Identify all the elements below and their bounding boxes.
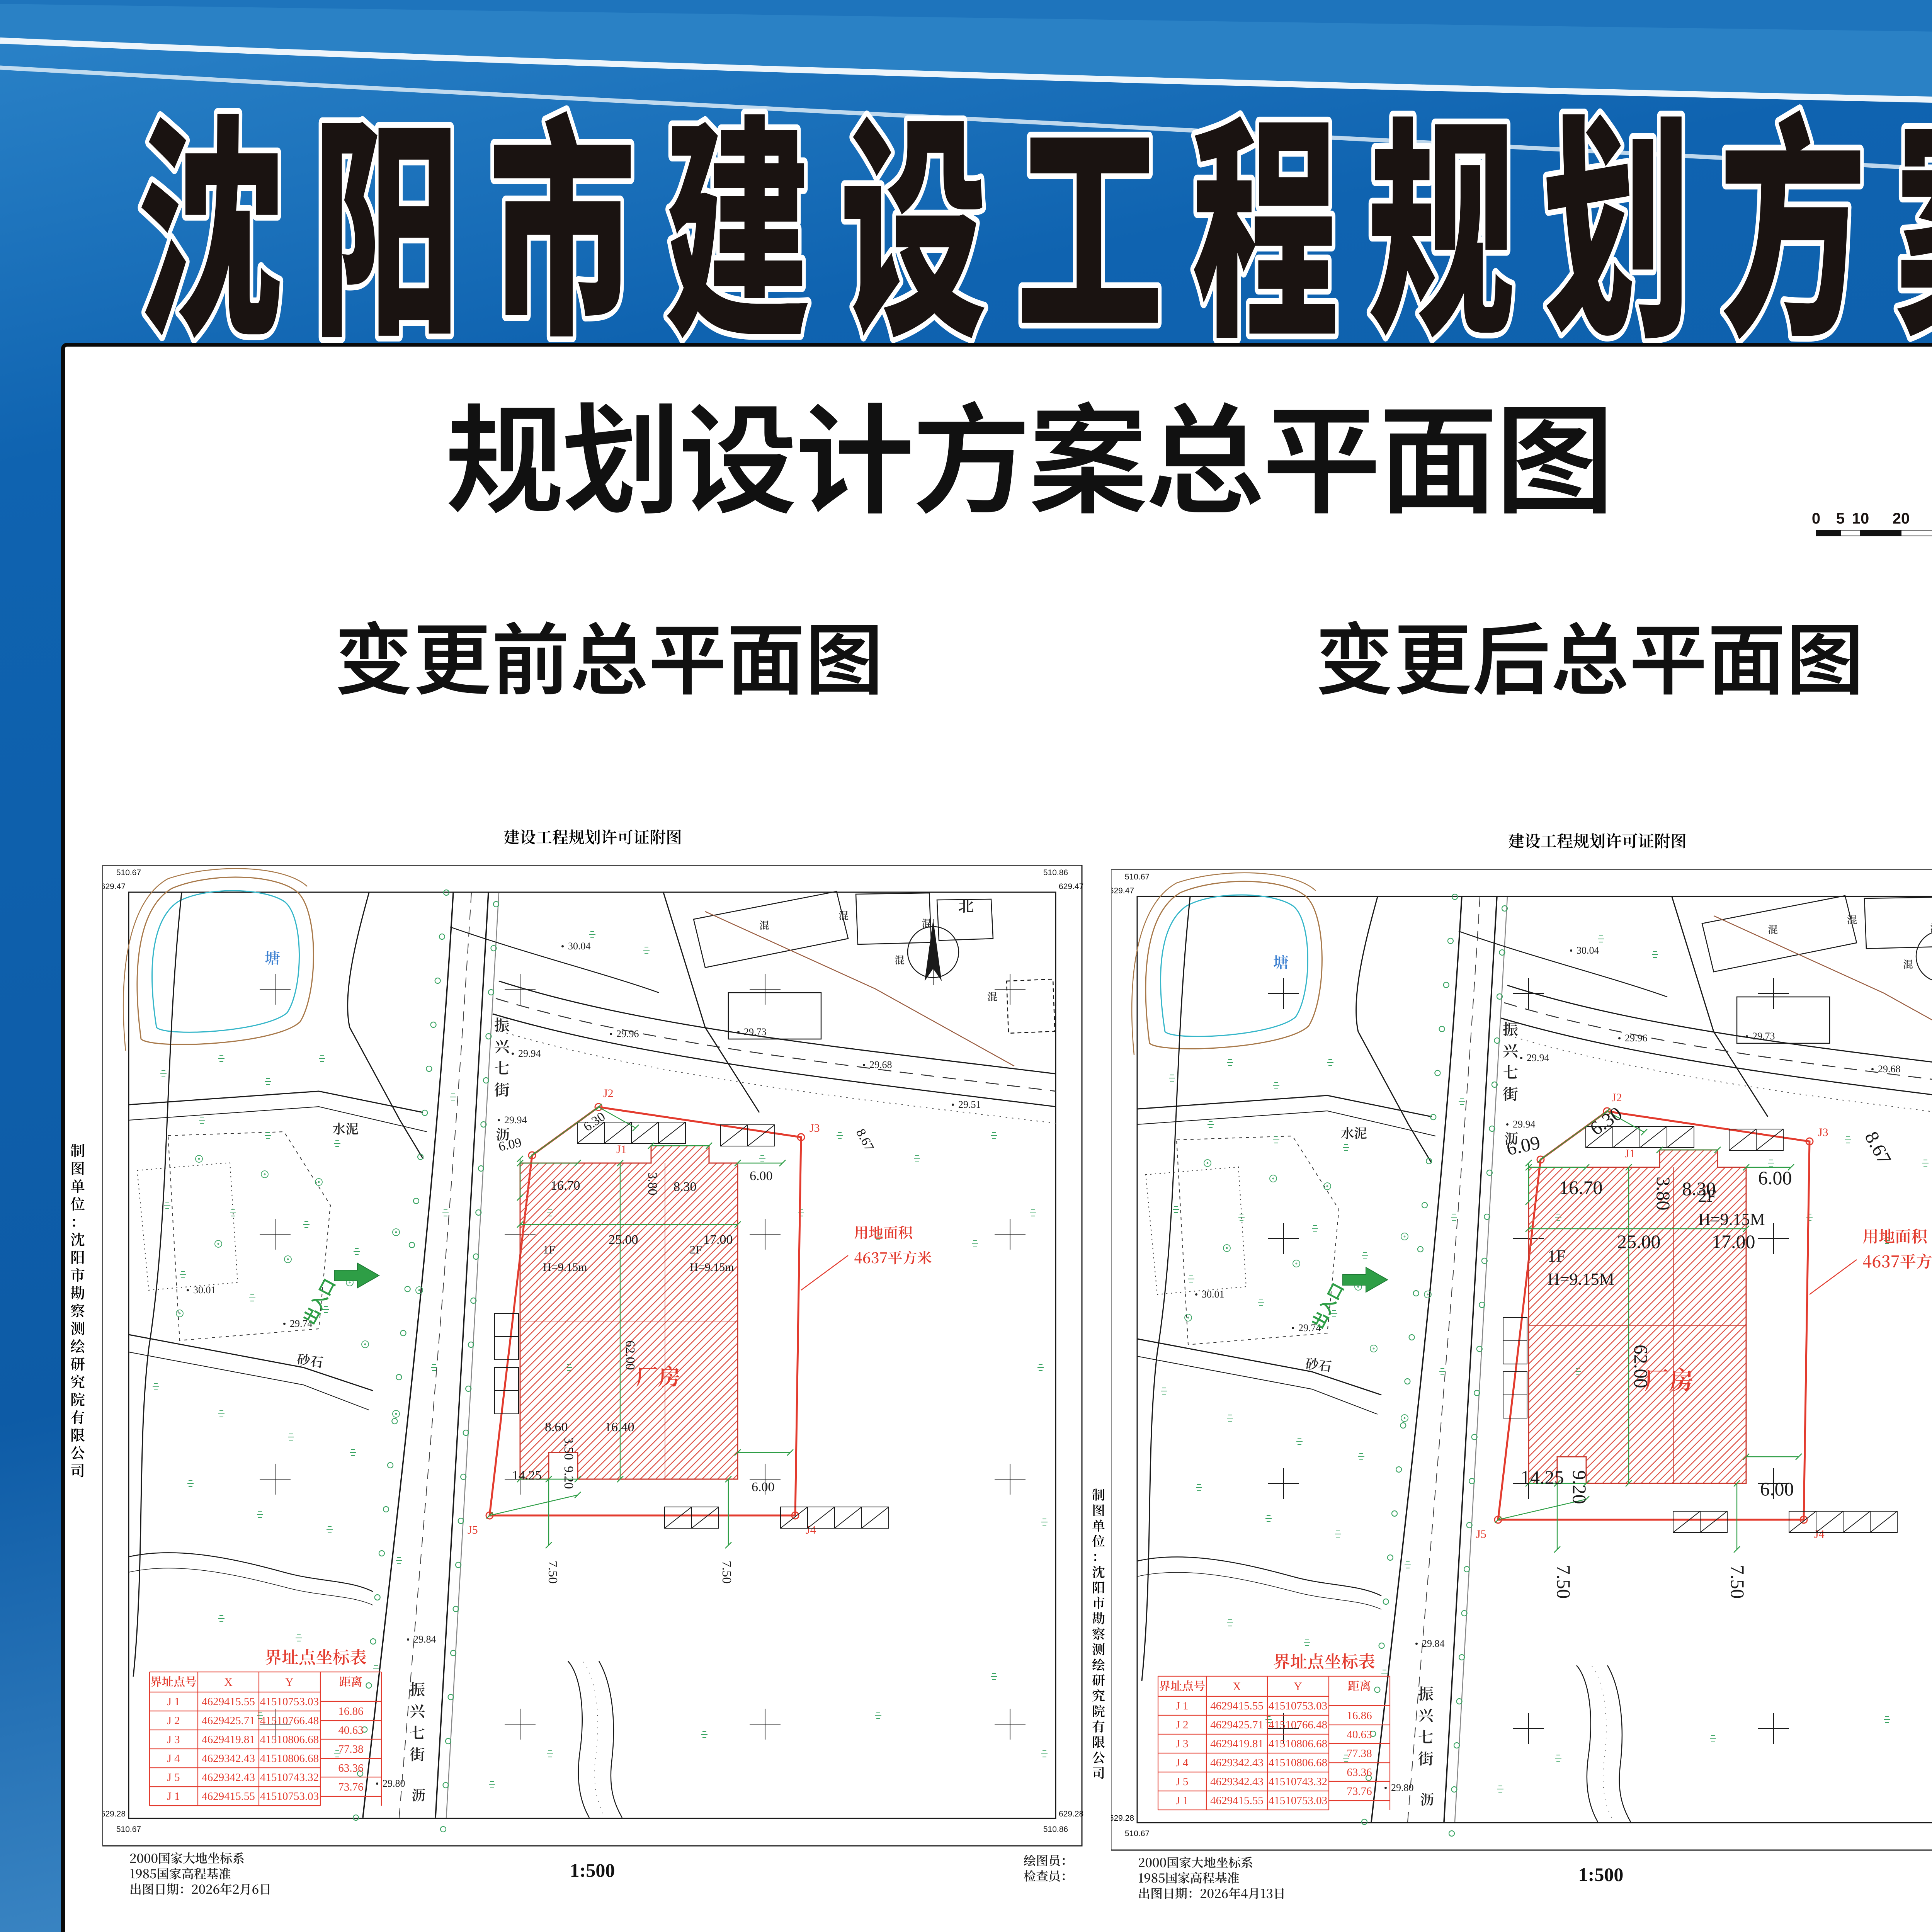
svg-text:29.74: 29.74 [1298, 1322, 1321, 1333]
svg-text:8.60: 8.60 [545, 1420, 568, 1434]
svg-text:J 1: J 1 [1175, 1700, 1188, 1712]
svg-text:629.47: 629.47 [102, 882, 126, 891]
svg-text:Y: Y [1294, 1680, 1302, 1693]
svg-text:4629415.55: 4629415.55 [202, 1696, 255, 1708]
svg-text:1F: 1F [543, 1243, 555, 1256]
svg-text:41510806.68: 41510806.68 [260, 1733, 319, 1746]
svg-text:4629415.55: 4629415.55 [1210, 1794, 1264, 1807]
svg-text:6.30: 6.30 [581, 1109, 608, 1134]
svg-text:6.00: 6.00 [752, 1480, 775, 1494]
svg-text:J 2: J 2 [1175, 1719, 1188, 1731]
svg-text:41510753.03: 41510753.03 [260, 1696, 319, 1708]
svg-text:6.00: 6.00 [750, 1169, 773, 1183]
svg-text:29.73: 29.73 [744, 1026, 767, 1037]
svg-text:17.00: 17.00 [1712, 1231, 1755, 1252]
svg-text:62.00: 62.00 [1630, 1345, 1652, 1388]
svg-text:62.00: 62.00 [623, 1340, 637, 1370]
svg-text:8.67: 8.67 [853, 1126, 877, 1153]
svg-text:9.20: 9.20 [561, 1466, 576, 1489]
svg-text:1:500: 1:500 [570, 1859, 615, 1881]
svg-text:629.28: 629.28 [1059, 1810, 1083, 1818]
svg-text:J 1: J 1 [1175, 1794, 1188, 1807]
svg-text:J1: J1 [1625, 1147, 1635, 1160]
svg-text:510.67: 510.67 [116, 868, 141, 877]
svg-text:J 4: J 4 [167, 1752, 180, 1765]
svg-text:7.50: 7.50 [546, 1561, 560, 1584]
svg-text:1F: 1F [1548, 1247, 1565, 1265]
svg-text:J 5: J 5 [167, 1771, 180, 1784]
svg-text:X: X [224, 1676, 233, 1689]
svg-text:629.28: 629.28 [1111, 1814, 1134, 1823]
svg-text:10: 10 [1852, 510, 1869, 527]
svg-text:4629342.43: 4629342.43 [1210, 1757, 1264, 1769]
svg-text:29.94: 29.94 [518, 1048, 541, 1059]
svg-text:3.80: 3.80 [1653, 1177, 1674, 1211]
svg-text:30.01: 30.01 [193, 1284, 216, 1296]
svg-text:41510753.03: 41510753.03 [1269, 1700, 1327, 1712]
svg-text:25.00: 25.00 [1617, 1231, 1661, 1252]
svg-text:3.50: 3.50 [561, 1437, 576, 1460]
svg-text:4629415.55: 4629415.55 [1210, 1700, 1264, 1712]
svg-text:H=9.15m: H=9.15m [543, 1261, 587, 1274]
svg-text:0: 0 [1812, 510, 1820, 527]
svg-text:J 3: J 3 [167, 1733, 180, 1746]
svg-text:4629342.43: 4629342.43 [1210, 1776, 1264, 1788]
svg-text:16.86: 16.86 [338, 1705, 363, 1718]
svg-text:6.00: 6.00 [1760, 1478, 1794, 1500]
svg-text:7.50: 7.50 [1553, 1565, 1575, 1599]
svg-text:30.01: 30.01 [1202, 1289, 1225, 1300]
svg-text:H=9.15M: H=9.15M [1548, 1270, 1614, 1289]
svg-text:J2: J2 [1612, 1091, 1622, 1104]
svg-text:29.51: 29.51 [958, 1099, 981, 1110]
svg-text:4629419.81: 4629419.81 [1210, 1738, 1264, 1750]
svg-text:63.36: 63.36 [1347, 1766, 1372, 1779]
svg-text:510.86: 510.86 [1043, 1825, 1068, 1834]
svg-text:7.50: 7.50 [719, 1561, 734, 1584]
svg-text:J 1: J 1 [167, 1696, 180, 1708]
svg-text:J 5: J 5 [1175, 1776, 1188, 1788]
svg-text:30.04: 30.04 [568, 940, 591, 952]
svg-text:510.67: 510.67 [1125, 1829, 1150, 1838]
svg-text:41510766.48: 41510766.48 [1269, 1719, 1327, 1731]
svg-text:J5: J5 [1476, 1528, 1486, 1541]
svg-text:25.00: 25.00 [609, 1233, 638, 1247]
svg-text:4629425.71: 4629425.71 [1210, 1719, 1264, 1731]
svg-text:16.70: 16.70 [1559, 1177, 1603, 1198]
svg-text:510.86: 510.86 [1043, 868, 1068, 877]
svg-text:J5: J5 [468, 1524, 478, 1536]
svg-text:73.76: 73.76 [338, 1781, 363, 1793]
svg-text:29.94: 29.94 [504, 1114, 527, 1126]
svg-text:5: 5 [1836, 510, 1845, 527]
svg-text:29.80: 29.80 [1391, 1782, 1414, 1793]
svg-text:29.96: 29.96 [616, 1028, 639, 1039]
svg-text:J3: J3 [810, 1122, 820, 1134]
svg-text:629.28: 629.28 [102, 1810, 126, 1818]
svg-text:J3: J3 [1818, 1126, 1828, 1139]
svg-text:63.36: 63.36 [338, 1762, 363, 1774]
svg-text:8.67: 8.67 [1861, 1128, 1896, 1168]
svg-text:3.80: 3.80 [645, 1172, 660, 1196]
svg-text:4629419.81: 4629419.81 [202, 1733, 255, 1746]
svg-text:29.94: 29.94 [1513, 1119, 1536, 1130]
svg-text:4629342.43: 4629342.43 [202, 1771, 255, 1784]
svg-text:J2: J2 [603, 1087, 614, 1100]
svg-text:29.68: 29.68 [1878, 1063, 1901, 1075]
svg-text:16.70: 16.70 [551, 1179, 580, 1193]
svg-text:41510806.68: 41510806.68 [260, 1752, 319, 1765]
svg-text:41510753.03: 41510753.03 [1269, 1794, 1327, 1807]
svg-text:8.30: 8.30 [673, 1180, 697, 1194]
svg-text:17.00: 17.00 [703, 1233, 733, 1247]
svg-text:510.67: 510.67 [116, 1825, 141, 1834]
svg-text:77.38: 77.38 [1347, 1747, 1372, 1760]
svg-text:73.76: 73.76 [1347, 1785, 1372, 1798]
svg-text:41510743.32: 41510743.32 [1269, 1776, 1327, 1788]
svg-text:510.67: 510.67 [1125, 872, 1150, 881]
svg-text:4629342.43: 4629342.43 [202, 1752, 255, 1765]
svg-text:H=9.15m: H=9.15m [690, 1261, 734, 1274]
svg-text:J 1: J 1 [167, 1790, 180, 1803]
svg-text:629.47: 629.47 [1111, 886, 1134, 895]
svg-text:6.00: 6.00 [1758, 1167, 1792, 1189]
svg-text:40.63: 40.63 [1347, 1728, 1372, 1741]
svg-text:29.84: 29.84 [413, 1634, 436, 1645]
svg-text:X: X [1233, 1680, 1241, 1693]
svg-text:1:500: 1:500 [1578, 1864, 1624, 1885]
svg-text:41510806.68: 41510806.68 [1269, 1757, 1327, 1769]
svg-text:29.80: 29.80 [383, 1778, 405, 1789]
svg-text:8.30: 8.30 [1682, 1178, 1716, 1199]
svg-text:6.30: 6.30 [1586, 1102, 1626, 1139]
svg-text:29.73: 29.73 [1752, 1031, 1775, 1042]
svg-text:41510766.48: 41510766.48 [260, 1714, 319, 1727]
svg-text:4629415.55: 4629415.55 [202, 1790, 255, 1803]
svg-text:J 3: J 3 [1175, 1738, 1188, 1750]
svg-text:41510806.68: 41510806.68 [1269, 1738, 1327, 1750]
svg-text:29.74: 29.74 [290, 1318, 313, 1329]
svg-text:J1: J1 [616, 1143, 627, 1156]
svg-text:41510753.03: 41510753.03 [260, 1790, 319, 1803]
svg-text:J 4: J 4 [1175, 1757, 1189, 1769]
svg-text:16.86: 16.86 [1347, 1709, 1372, 1722]
svg-text:40.63: 40.63 [338, 1724, 363, 1736]
svg-text:H=9.15M: H=9.15M [1698, 1210, 1765, 1229]
svg-text:30.04: 30.04 [1577, 945, 1599, 956]
svg-text:7.50: 7.50 [1727, 1565, 1748, 1599]
svg-text:29.96: 29.96 [1625, 1032, 1648, 1044]
svg-text:2F: 2F [690, 1243, 702, 1256]
svg-text:14.25: 14.25 [1520, 1466, 1564, 1488]
svg-text:20: 20 [1893, 510, 1910, 527]
svg-text:16.40: 16.40 [605, 1420, 634, 1434]
svg-text:14.25: 14.25 [512, 1468, 542, 1483]
svg-text:4629425.71: 4629425.71 [202, 1714, 255, 1727]
svg-text:29.68: 29.68 [869, 1059, 892, 1070]
svg-text:29.94: 29.94 [1527, 1052, 1549, 1063]
svg-text:Y: Y [285, 1676, 294, 1689]
svg-text:J 2: J 2 [167, 1714, 180, 1727]
svg-text:77.38: 77.38 [338, 1743, 363, 1755]
svg-text:629.47: 629.47 [1059, 882, 1083, 891]
svg-text:41510743.32: 41510743.32 [260, 1771, 319, 1784]
svg-text:29.84: 29.84 [1422, 1638, 1445, 1649]
svg-text:9.20: 9.20 [1569, 1470, 1590, 1504]
